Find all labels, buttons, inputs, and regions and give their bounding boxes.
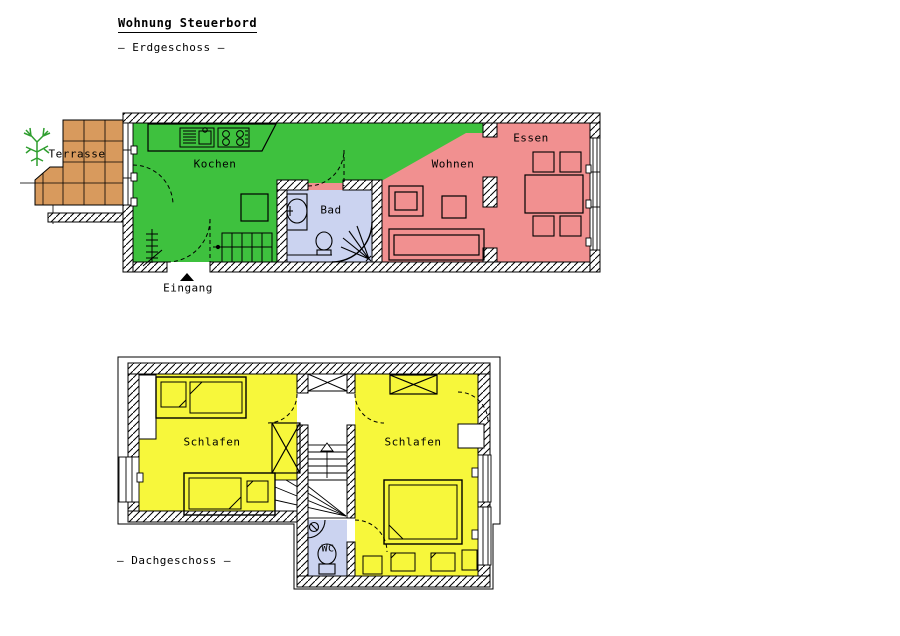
- room-label-essen: Essen: [513, 133, 549, 144]
- page-title: Wohnung Steuerbord: [118, 16, 257, 33]
- floorplan-drawing: [0, 0, 900, 636]
- tree-icon: [24, 128, 50, 166]
- room-label-kochen: Kochen: [194, 159, 237, 170]
- room-label-wohnen: Wohnen: [432, 159, 475, 170]
- room-label-wc: WC: [321, 544, 334, 555]
- floor-label-dachgeschoss: – Dachgeschoss –: [117, 554, 231, 567]
- floorplan-page: Wohnung Steuerbord – Erdgeschoss – – Dac…: [0, 0, 900, 636]
- closet-right: [458, 424, 484, 448]
- entrance-arrow: [180, 273, 194, 281]
- entrance-label: Eingang: [163, 283, 213, 294]
- window-left: [119, 457, 143, 502]
- room-label-schlafen-left: Schlafen: [184, 437, 241, 448]
- knee-wall-closet: [139, 375, 156, 439]
- room-label-bad: Bad: [320, 205, 341, 216]
- floor-label-erdgeschoss: – Erdgeschoss –: [118, 41, 225, 54]
- room-schlafen-right-area: [355, 374, 478, 576]
- room-label-schlafen-right: Schlafen: [385, 437, 442, 448]
- skylight-box: [308, 374, 347, 391]
- terrace: [20, 120, 125, 224]
- room-label-terrasse: Terrasse: [49, 149, 106, 160]
- garden-wall: [48, 213, 123, 222]
